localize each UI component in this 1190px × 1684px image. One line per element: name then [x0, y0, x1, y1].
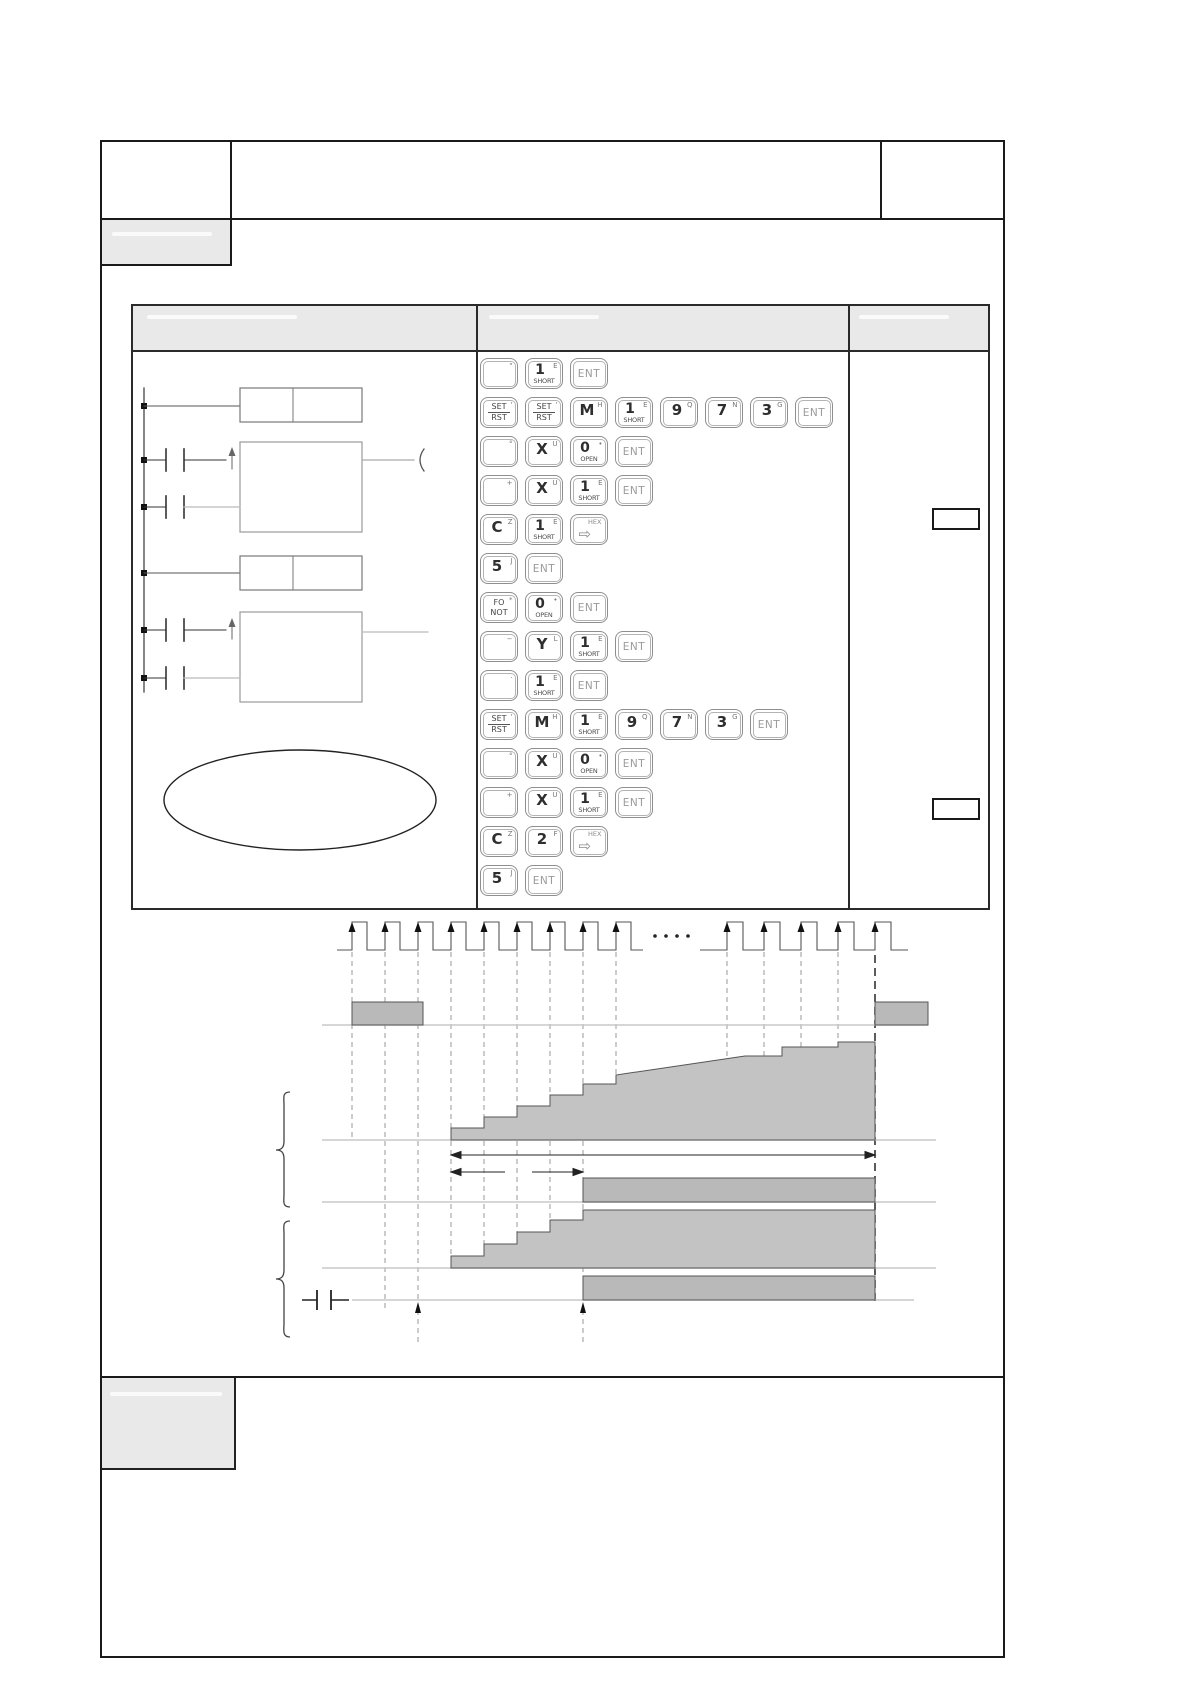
key-0: 0•OPEN — [570, 748, 608, 779]
key-blank: + — [480, 475, 518, 506]
key-x: XU — [525, 787, 563, 818]
key-m: MH — [525, 709, 563, 740]
key-fo-not: FONOT* — [480, 592, 518, 623]
key-blank: · — [480, 670, 518, 701]
key-ent: ENT — [615, 787, 653, 818]
key-ent: ENT — [570, 592, 608, 623]
key-1: 1ESHORT — [570, 475, 608, 506]
key-ent: ENT — [795, 397, 833, 428]
key-hex-: HEX⇨ — [570, 826, 608, 857]
key-2: 2F — [525, 826, 563, 857]
key-set-rst: SETRST' — [480, 709, 518, 740]
key-ent: ENT — [570, 358, 608, 389]
key-c: CZ — [480, 514, 518, 545]
header-bottom-border — [102, 218, 1003, 220]
key-1: 1ESHORT — [525, 358, 563, 389]
key-row-9: ·1ESHORTENT — [480, 670, 608, 701]
note-label-box — [102, 1378, 236, 1470]
key-1: 1ESHORT — [615, 397, 653, 428]
comment-box-1 — [932, 508, 980, 530]
key-blank: " — [480, 358, 518, 389]
key-row-10: SETRST'MH1ESHORT9Q7N3GENT — [480, 709, 788, 740]
column-divider-1 — [476, 306, 478, 908]
key-3: 3G — [705, 709, 743, 740]
comment-box-2 — [932, 798, 980, 820]
key-ent: ENT — [615, 475, 653, 506]
key-x: XU — [525, 475, 563, 506]
key-row-14: 5JENT — [480, 865, 563, 896]
key-1: 1ESHORT — [570, 631, 608, 662]
key-0: 0•OPEN — [570, 436, 608, 467]
key-ent: ENT — [615, 436, 653, 467]
key-row-11: °XU0•OPENENT — [480, 748, 653, 779]
key-blank: ° — [480, 748, 518, 779]
key-5: 5J — [480, 553, 518, 584]
key-blank: − — [480, 631, 518, 662]
key-row-4: +XU1ESHORTENT — [480, 475, 653, 506]
key-set-rst: SETRST' — [525, 397, 563, 428]
key-row-2: SETRST'SETRST'MH1ESHORT9Q7N3GENT — [480, 397, 833, 428]
key-ent: ENT — [750, 709, 788, 740]
header-divider-left — [230, 142, 232, 218]
key-x: XU — [525, 436, 563, 467]
key-row-12: +XU1ESHORTENT — [480, 787, 653, 818]
manual-page: "1ESHORTENTSETRST'SETRST'MH1ESHORT9Q7N3G… — [0, 0, 1190, 1684]
note-section-top-border — [102, 1376, 1003, 1378]
key-1: 1ESHORT — [525, 514, 563, 545]
key-blank: ° — [480, 436, 518, 467]
key-hex-: HEX⇨ — [570, 514, 608, 545]
key-3: 3G — [750, 397, 788, 428]
key-7: 7N — [660, 709, 698, 740]
hex-arrow-icon: ⇨ — [579, 839, 592, 854]
key-ent: ENT — [525, 865, 563, 896]
key-1: 1ESHORT — [525, 670, 563, 701]
key-row-3: °XU0•OPENENT — [480, 436, 653, 467]
key-ent: ENT — [570, 670, 608, 701]
key-1: 1ESHORT — [570, 709, 608, 740]
key-row-8: −YL1ESHORTENT — [480, 631, 653, 662]
key-x: XU — [525, 748, 563, 779]
key-ent: ENT — [525, 553, 563, 584]
key-row-1: "1ESHORTENT — [480, 358, 608, 389]
key-row-13: CZ2FHEX⇨ — [480, 826, 608, 857]
key-set-rst: SETRST' — [480, 397, 518, 428]
key-operation-sequence: "1ESHORTENTSETRST'SETRST'MH1ESHORT9Q7N3G… — [480, 358, 860, 903]
key-ent: ENT — [615, 631, 653, 662]
header-divider-right — [880, 142, 882, 218]
key-row-7: FONOT*0•OPENENT — [480, 592, 608, 623]
section-tab-box — [102, 220, 232, 266]
hex-arrow-icon: ⇨ — [579, 527, 592, 542]
key-c: CZ — [480, 826, 518, 857]
key-row-6: 5JENT — [480, 553, 563, 584]
key-1: 1ESHORT — [570, 787, 608, 818]
key-0: 0•OPEN — [525, 592, 563, 623]
operation-table-header-row — [133, 306, 988, 352]
key-blank: + — [480, 787, 518, 818]
key-row-5: CZ1ESHORTHEX⇨ — [480, 514, 608, 545]
key-ent: ENT — [615, 748, 653, 779]
key-7: 7N — [705, 397, 743, 428]
key-9: 9Q — [615, 709, 653, 740]
key-m: MH — [570, 397, 608, 428]
key-9: 9Q — [660, 397, 698, 428]
key-y: YL — [525, 631, 563, 662]
key-5: 5J — [480, 865, 518, 896]
